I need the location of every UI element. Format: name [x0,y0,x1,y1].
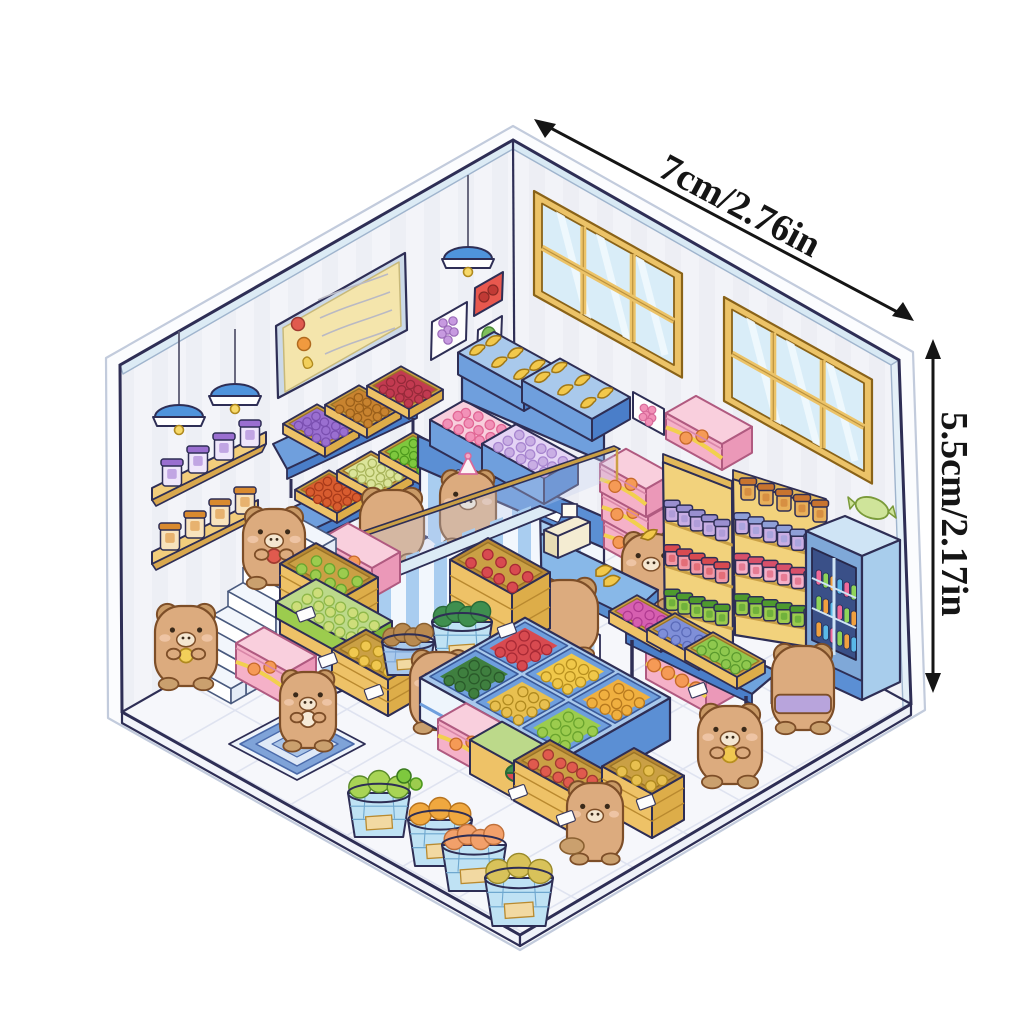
svg-text:5.5cm/2.17in: 5.5cm/2.17in [933,412,975,617]
